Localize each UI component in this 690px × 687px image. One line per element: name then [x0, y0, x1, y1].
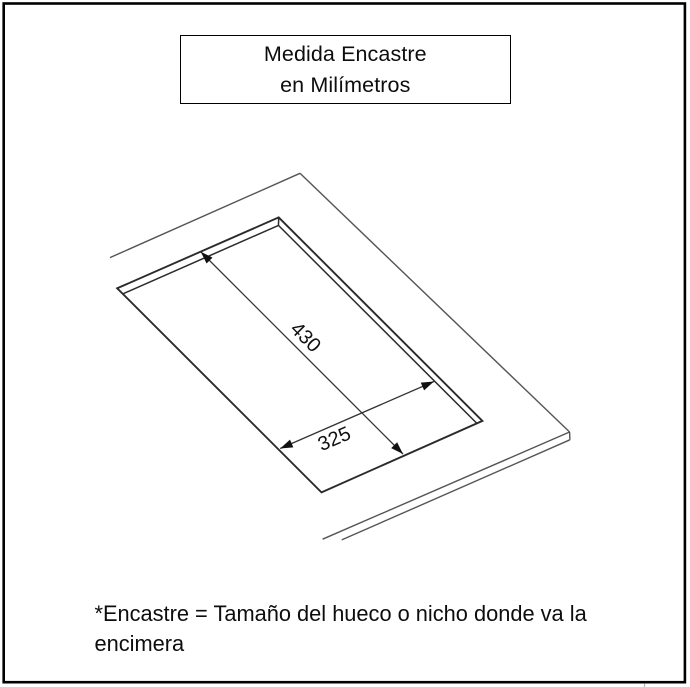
svg-text:430: 430	[286, 318, 325, 357]
svg-text:325: 325	[315, 423, 354, 456]
